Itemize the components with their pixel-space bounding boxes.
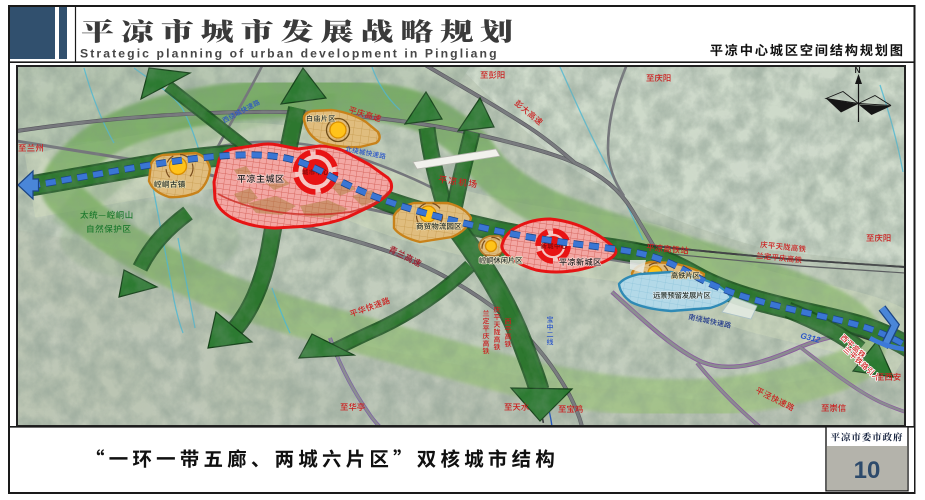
svg-text:Strategic planning of urban de: Strategic planning of urban development … [80,47,499,61]
svg-text:10: 10 [854,457,881,484]
